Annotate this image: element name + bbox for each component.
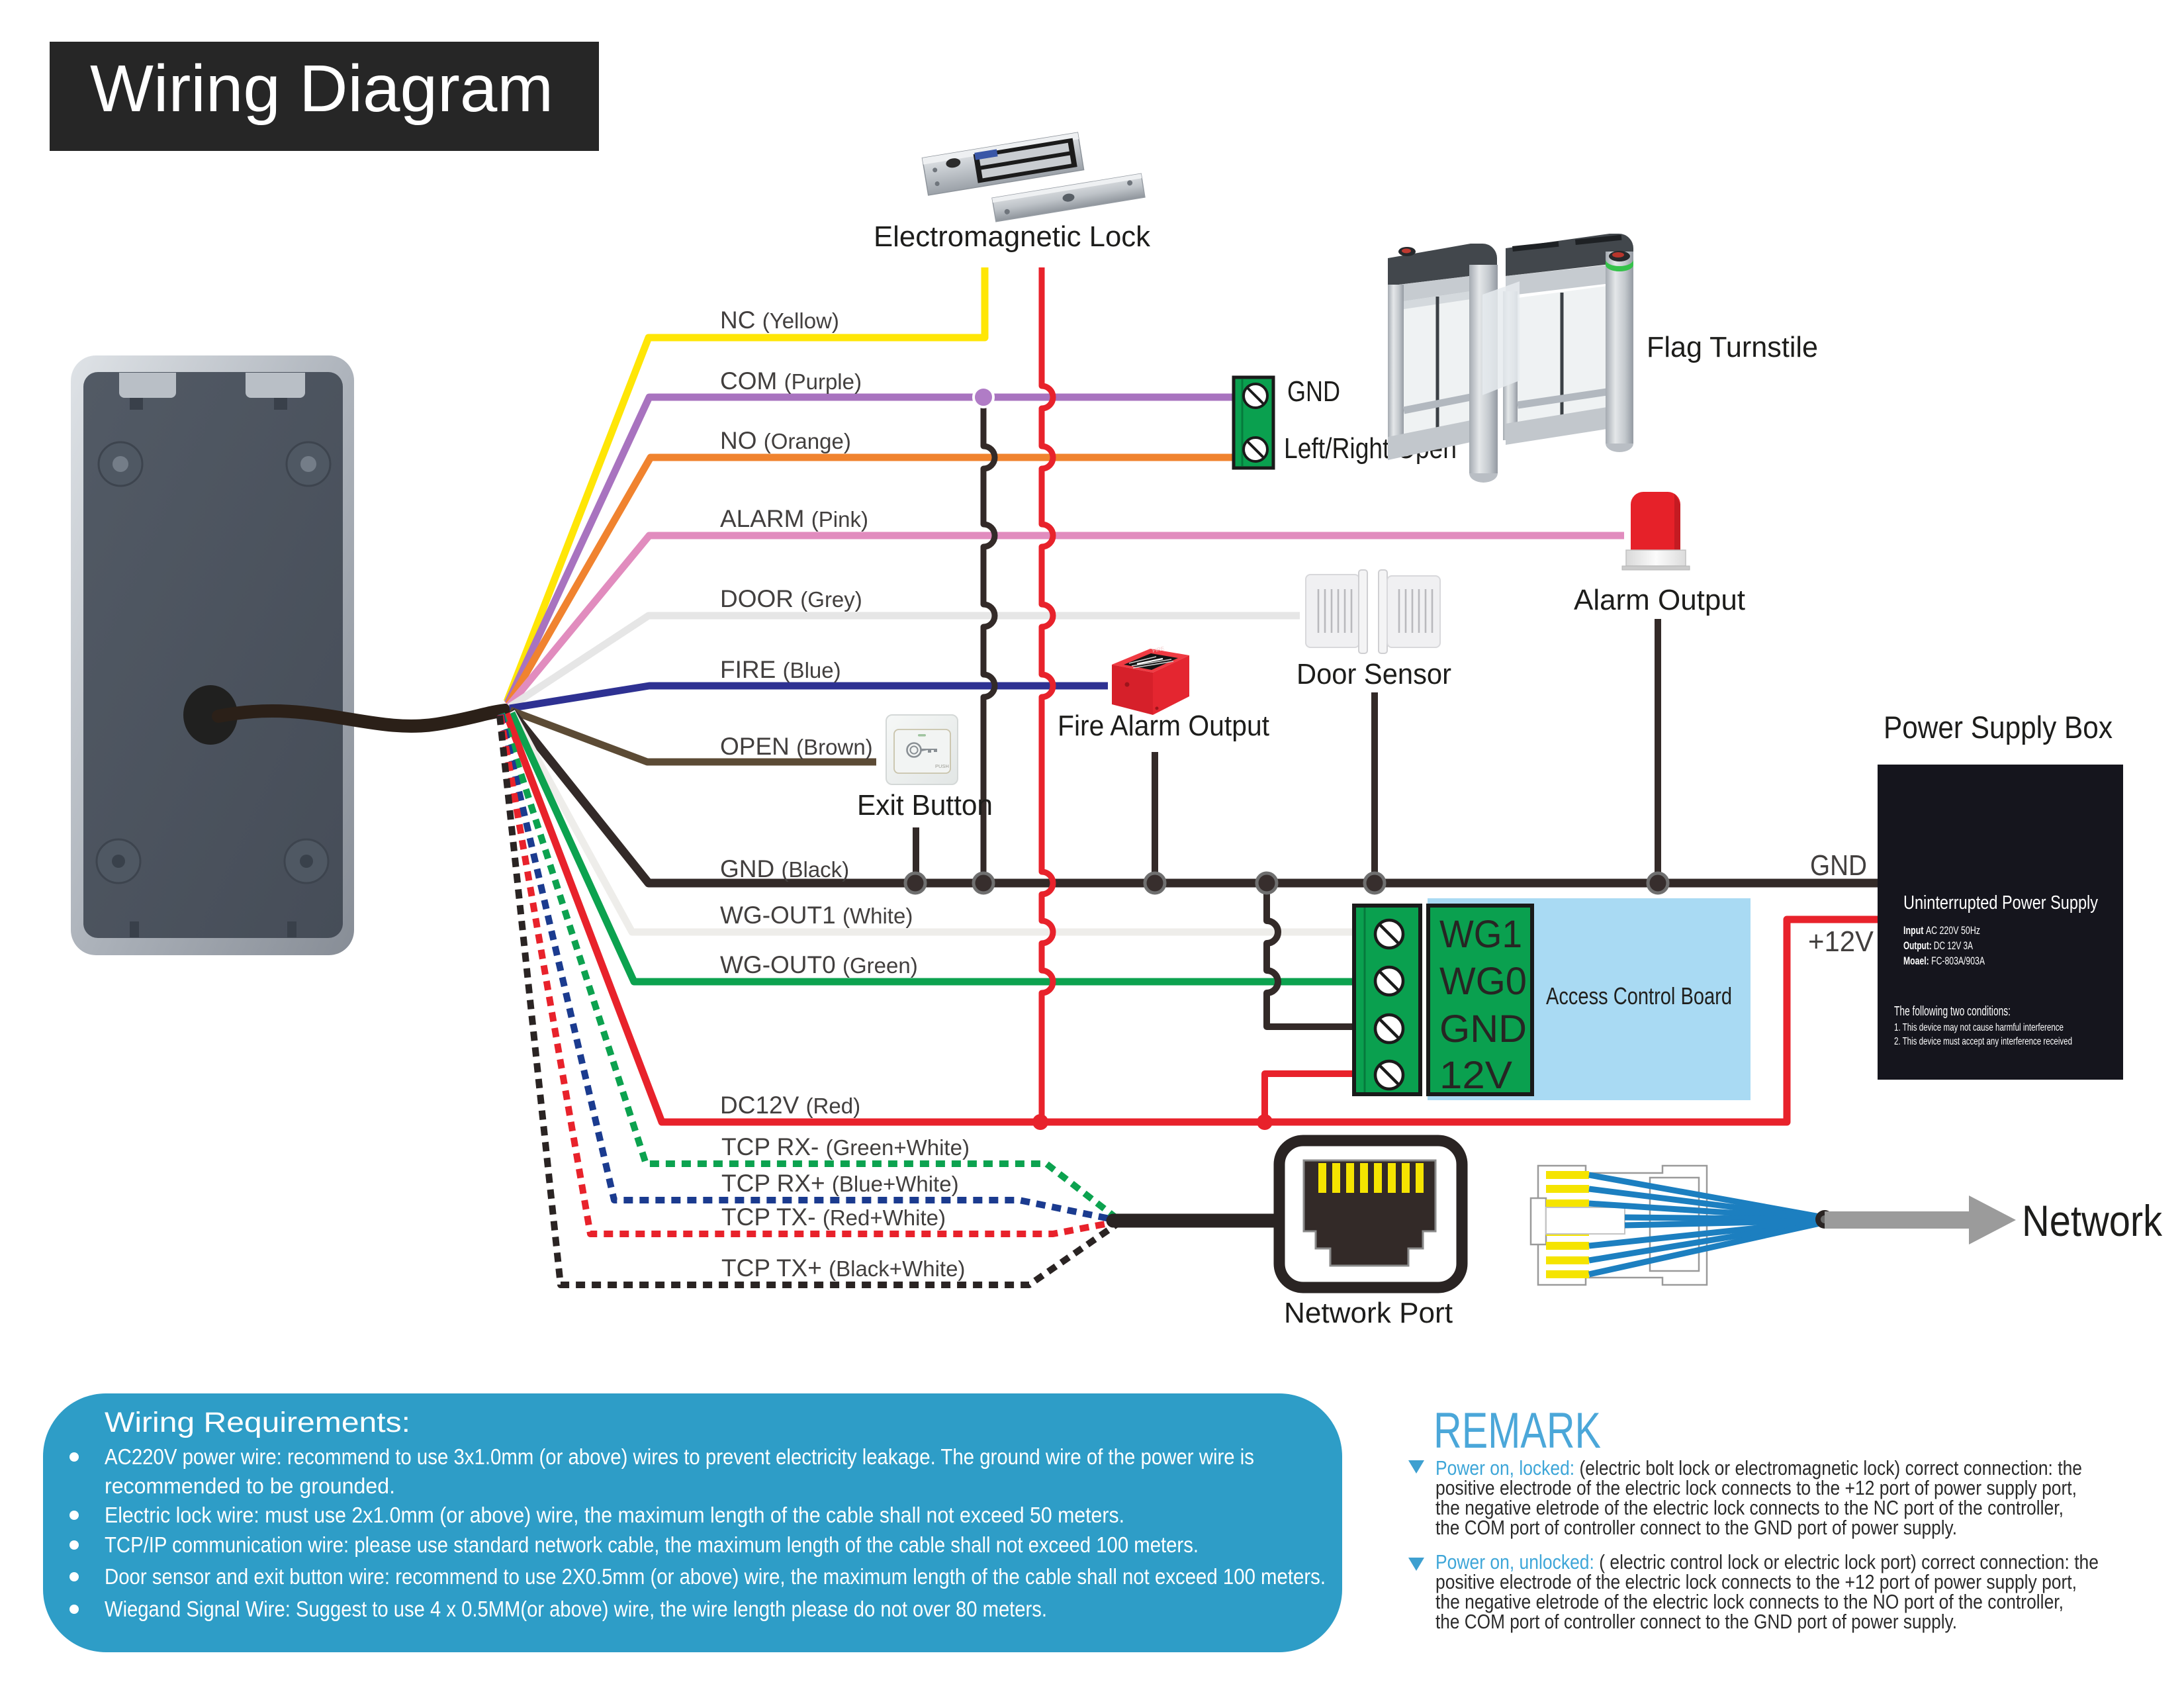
svg-text:GND: GND [1287,375,1340,408]
svg-text:Power Supply Box: Power Supply Box [1884,710,2113,745]
svg-text:Network: Network [2022,1196,2163,1245]
svg-text:GND: GND [1810,849,1867,882]
svg-text:recommended to be grounded.: recommended to be grounded. [105,1474,395,1498]
svg-text:Output: DC 12V 3A: Output: DC 12V 3A [1903,939,1973,952]
svg-text:Door sensor and exit button wi: Door sensor and exit button wire: recomm… [105,1564,1326,1589]
svg-text:1. This device may not cause h: 1. This device may not cause harmful int… [1894,1022,2064,1033]
svg-text:NC (Yellow): NC (Yellow) [720,306,839,334]
svg-text:WG1: WG1 [1439,913,1522,956]
svg-text:DOOR (Grey): DOOR (Grey) [720,585,862,612]
svg-text:WG-OUT1 (White): WG-OUT1 (White) [720,902,913,929]
svg-text:Network Port: Network Port [1284,1297,1453,1329]
svg-text:Wiegand Signal Wire: Suggest t: Wiegand Signal Wire: Suggest to use 4 x … [105,1597,1047,1621]
svg-text:WG-OUT0 (Green): WG-OUT0 (Green) [720,951,918,978]
svg-text:Access Control Board: Access Control Board [1546,982,1732,1009]
svg-text:FIRE (Blue): FIRE (Blue) [720,656,841,683]
svg-text:2. This device must accept any: 2. This device must accept any interfere… [1894,1036,2072,1047]
svg-text:REMARK: REMARK [1433,1403,1601,1459]
svg-text:Electromagnetic Lock: Electromagnetic Lock [874,220,1151,253]
svg-text:TCP/IP communication wire: ple: TCP/IP communication wire: please use st… [105,1532,1199,1557]
svg-text:Wiring Diagram: Wiring Diagram [90,52,553,126]
svg-text:Wiring Requirements:: Wiring Requirements: [105,1407,410,1438]
svg-text:Fire Alarm Output: Fire Alarm Output [1058,710,1269,742]
svg-text:Flag Turnstile: Flag Turnstile [1647,331,1818,363]
svg-text:TCP RX- (Green+White): TCP RX- (Green+White) [721,1133,970,1160]
svg-text:GND (Black): GND (Black) [720,855,849,882]
svg-text:TCP TX- (Red+White): TCP TX- (Red+White) [721,1203,946,1231]
svg-text:Uninterrupted Power Supply: Uninterrupted Power Supply [1903,892,2098,914]
svg-text:AC220V power wire: recommend: AC220V power wire: recommend to use 3x1.… [105,1444,1254,1469]
svg-text:Input AC 220V 50Hz: Input AC 220V 50Hz [1903,924,1980,937]
svg-text:TCP TX+ (Black+White): TCP TX+ (Black+White) [721,1254,965,1282]
svg-text:DC12V (Red): DC12V (Red) [720,1092,860,1119]
svg-text:the COM port of controller con: the COM port of controller connect to th… [1435,1516,1957,1539]
svg-text:Alarm Output: Alarm Output [1574,584,1745,616]
svg-text:The following two conditions:: The following two conditions: [1894,1004,2011,1019]
svg-text:Exit Button: Exit Button [857,789,993,821]
svg-text:GND: GND [1439,1008,1527,1051]
svg-text:ALARM (Pink): ALARM (Pink) [720,505,868,532]
svg-text:TCP RX+ (Blue+White): TCP RX+ (Blue+White) [721,1170,959,1197]
svg-text:NO (Orange): NO (Orange) [720,427,851,454]
svg-text:+12V: +12V [1808,925,1874,958]
svg-text:OPEN (Brown): OPEN (Brown) [720,733,873,760]
svg-text:WG0: WG0 [1439,960,1527,1003]
svg-text:PUSH: PUSH [935,763,949,769]
svg-text:12V: 12V [1439,1054,1512,1097]
svg-text:Moael: FC-803A/903A: Moael: FC-803A/903A [1903,955,1985,967]
svg-text:Door Sensor: Door Sensor [1297,658,1451,690]
svg-text:Electric lock wire: must use 2: Electric lock wire: must use 2x1.0mm (or… [105,1503,1124,1527]
svg-text:the COM port of controller con: the COM port of controller connect to th… [1435,1610,1957,1633]
svg-text:COM (Purple): COM (Purple) [720,367,862,395]
